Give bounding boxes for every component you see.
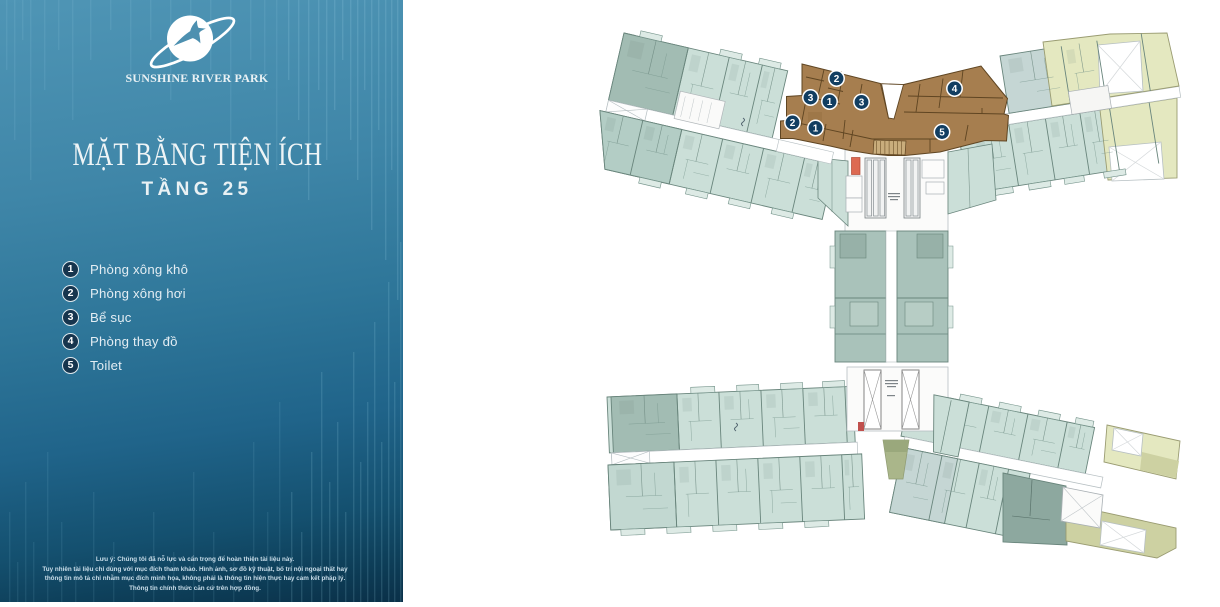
svg-text:2: 2 xyxy=(834,74,840,85)
svg-text:1: 1 xyxy=(827,97,833,108)
svg-text:2: 2 xyxy=(790,118,796,129)
svg-text:3: 3 xyxy=(859,98,865,109)
svg-text:3: 3 xyxy=(808,93,814,104)
svg-text:1: 1 xyxy=(813,124,819,135)
svg-text:5: 5 xyxy=(939,128,945,139)
svg-text:4: 4 xyxy=(952,84,958,95)
